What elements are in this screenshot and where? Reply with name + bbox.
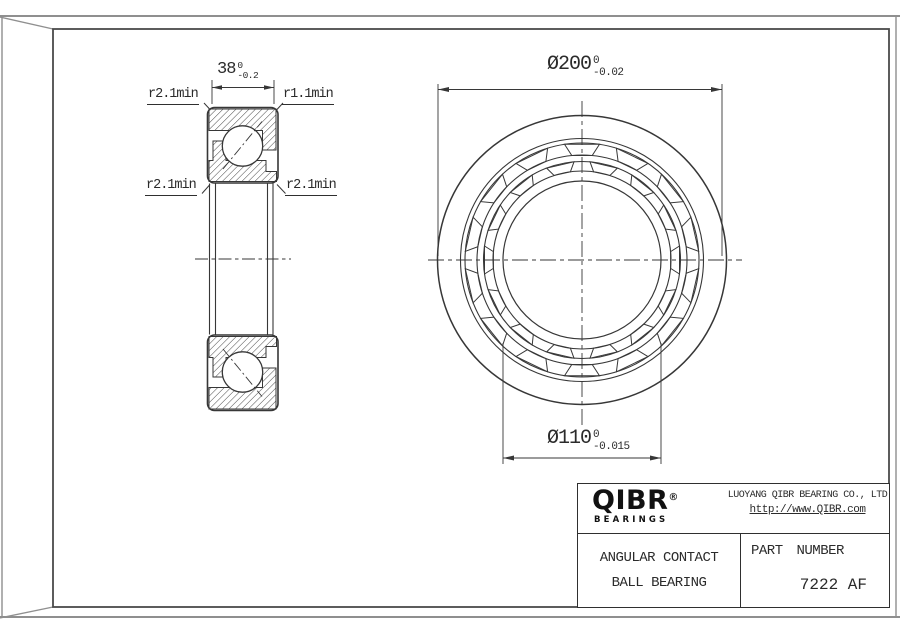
bore-dim-tolerance: 0 -0.015 — [593, 429, 630, 453]
front-view — [428, 84, 742, 464]
arrowhead — [438, 87, 449, 92]
engineering-drawing-page: { "side_view": { "width_dim": { "value":… — [0, 0, 900, 636]
width-dim-tolerance: 0 -0.2 — [237, 61, 258, 82]
title-block-detail-row: ANGULAR CONTACT BALL BEARING PART NUMBER… — [578, 534, 889, 607]
part-number-cell: PART NUMBER 7222 AF — [741, 534, 889, 607]
leader-top-left — [204, 103, 211, 110]
brand-subtitle: BEARINGS — [594, 515, 726, 525]
cage-pocket — [481, 317, 507, 346]
title-block: QIBR® BEARINGS LUOYANG QIBR BEARING CO.,… — [577, 483, 890, 608]
cage-pocket — [510, 324, 533, 345]
company-info: LUOYANG QIBR BEARING CO., LTD http://www… — [726, 484, 889, 533]
tolerance-upper: 0 — [593, 429, 630, 441]
od-dimension: Ø200 0 -0.02 — [547, 55, 624, 79]
product-type-line2: BALL BEARING — [612, 575, 707, 591]
cage-pocket — [657, 317, 683, 346]
cross-section-bottom — [208, 335, 279, 411]
cage-pocket — [616, 148, 648, 170]
width-dimension-lines — [212, 80, 274, 104]
chamfer-label-top-left: r2.1min — [147, 87, 199, 105]
od-dim-value: Ø200 — [547, 55, 591, 75]
bore-dim-value: Ø110 — [547, 429, 591, 449]
tolerance-lower: -0.02 — [593, 67, 624, 79]
bore-dimension: Ø110 0 -0.015 — [547, 429, 630, 453]
cage-pocket — [516, 148, 548, 170]
cage-pocket — [510, 175, 533, 196]
company-name: LUOYANG QIBR BEARING CO., LTD — [726, 490, 889, 501]
tolerance-lower: -0.2 — [237, 71, 258, 81]
cage-pocket — [631, 175, 654, 196]
arrowhead — [711, 87, 722, 92]
qibr-logo: QIBR® BEARINGS — [578, 484, 726, 533]
width-dimension: 38 0 -0.2 — [217, 61, 258, 82]
ball-bottom — [222, 352, 262, 392]
arrowhead — [650, 456, 661, 461]
cage-pocket — [616, 350, 648, 372]
cage-pocket — [657, 174, 683, 203]
cage-pocket — [481, 174, 507, 203]
cage-pocket — [631, 324, 654, 345]
width-dim-value: 38 — [217, 61, 235, 78]
chamfer-label-top-right: r1.1min — [282, 87, 334, 105]
part-number-label: PART NUMBER — [751, 543, 844, 559]
side-view — [195, 80, 291, 411]
tolerance-upper: 0 — [593, 55, 624, 67]
website-url: http://www.QIBR.com — [726, 504, 889, 516]
title-block-header-row: QIBR® BEARINGS LUOYANG QIBR BEARING CO.,… — [578, 484, 889, 534]
cross-section-top — [208, 108, 279, 184]
part-number-value: 7222 AF — [800, 576, 867, 594]
tolerance-lower: -0.015 — [593, 441, 630, 453]
arrowhead — [212, 85, 222, 90]
ball-top — [222, 126, 262, 166]
corner-diagonal-top-left — [0, 17, 53, 29]
brand-text: QIBR — [592, 485, 668, 516]
registered-trademark-icon: ® — [668, 492, 678, 503]
od-dim-tolerance: 0 -0.02 — [593, 55, 624, 79]
product-type-line1: ANGULAR CONTACT — [600, 550, 719, 566]
arrowhead — [503, 456, 514, 461]
arrowhead — [264, 85, 274, 90]
chamfer-label-bottom-right: r2.1min — [285, 178, 337, 196]
cage-pocket — [516, 350, 548, 372]
leader-bottom-left — [202, 185, 210, 194]
od-dimension-lines — [438, 84, 722, 256]
product-type: ANGULAR CONTACT BALL BEARING — [578, 534, 741, 607]
chamfer-label-bottom-left: r2.1min — [145, 178, 197, 196]
